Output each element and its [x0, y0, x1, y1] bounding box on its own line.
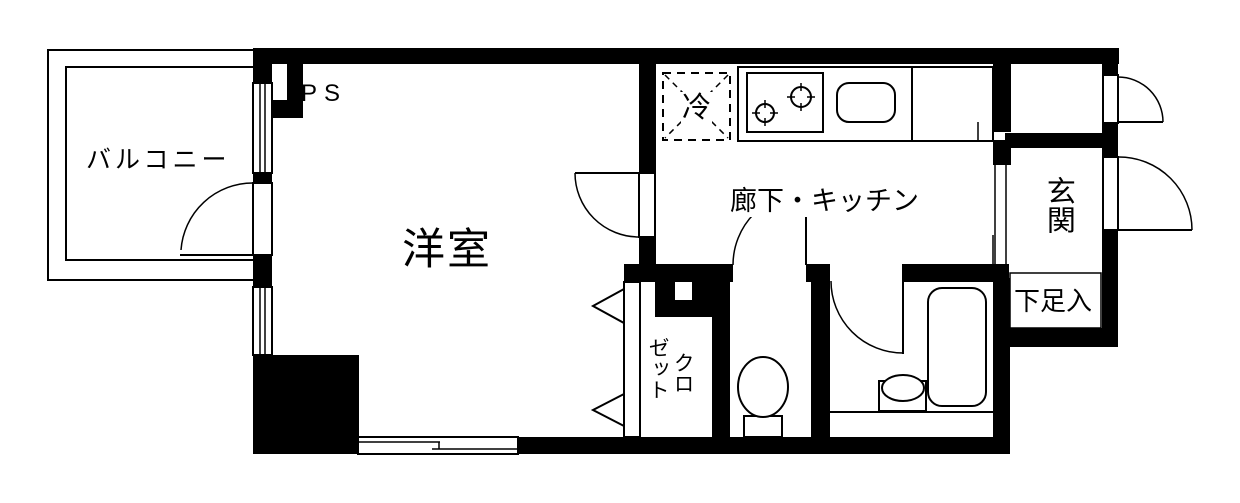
entrance-door [1103, 157, 1192, 230]
bathtub-icon [928, 288, 986, 406]
hallway-kitchen-label: 廊下・キッチン [728, 186, 921, 217]
kitchen-sink-icon [837, 83, 895, 122]
closet-label-column-right: クロ [670, 352, 694, 394]
stove-two-burner-icon [747, 73, 823, 132]
balcony-label: バルコニー [86, 146, 231, 175]
pipe-space-label: PS [301, 80, 347, 108]
window-balcony-upper [253, 83, 272, 173]
entrance-step-lines [993, 164, 1006, 264]
balcony-door [180, 183, 272, 255]
toilet-icon [738, 357, 788, 437]
kitchen-counter [738, 67, 993, 141]
folding-closet-door-icon [593, 282, 640, 437]
shoe-cabinet-label: 下足入 [1014, 287, 1092, 317]
washbasin-icon [879, 375, 926, 411]
floor-plan-drawing [0, 0, 1240, 503]
window-balcony-lower [253, 287, 272, 355]
storage-exterior-door [1103, 75, 1163, 123]
closet-label-column-left: ゼット [645, 337, 669, 400]
floor-plan: バルコニー PS 洋室 冷 廊下・キッチン 玄関 下足入 クロ ゼット [0, 0, 1240, 503]
refrigerator-label: 冷 [681, 92, 712, 125]
bath-door [831, 281, 903, 354]
western-room-label: 洋室 [402, 226, 492, 275]
entrance-label: 玄関 [1041, 176, 1074, 234]
window-south-sliding [358, 437, 518, 454]
western-room-door [575, 173, 655, 237]
